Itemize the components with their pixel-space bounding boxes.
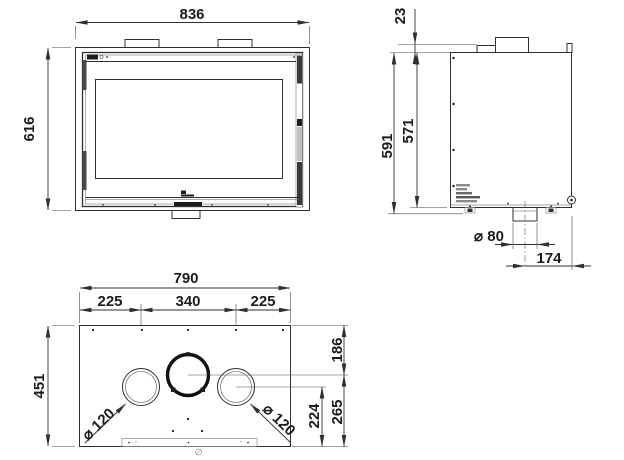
dim-label-790: 790 xyxy=(173,270,198,287)
front-view: 836 616 xyxy=(21,6,310,219)
dim-label-616: 616 xyxy=(21,116,38,141)
dim-label-186: 186 xyxy=(329,337,346,362)
dimension-back-to-flue: 186 xyxy=(329,326,346,376)
technical-drawing: 836 616 xyxy=(0,0,624,460)
dimension-duct-to-front: 174 xyxy=(506,216,591,270)
dimension-flue-to-front: 265 xyxy=(329,375,346,447)
dim-label-224: 224 xyxy=(306,403,323,429)
dim-label-591: 591 xyxy=(379,133,396,158)
dim-label-225-left: 225 xyxy=(97,293,122,310)
side-view: 23 591 571 xyxy=(379,8,591,270)
dim-label-836: 836 xyxy=(179,6,204,23)
dim-label-265: 265 xyxy=(329,399,346,424)
top-view: 790 225 340 225 451 xyxy=(31,270,348,455)
dim-label-571: 571 xyxy=(400,118,417,143)
dim-label-d80: ⌀ 80 xyxy=(474,228,504,245)
dim-label-340: 340 xyxy=(175,293,200,310)
hinge-strip-right xyxy=(296,54,303,207)
drawing-svg: 836 616 xyxy=(0,0,624,460)
dim-label-23: 23 xyxy=(392,8,409,25)
latch-mark xyxy=(196,449,202,455)
dimension-body-depth: 451 xyxy=(31,326,75,447)
dim-label-174: 174 xyxy=(536,250,562,267)
dimension-outlet-to-front: 224 xyxy=(306,387,323,447)
door-handle xyxy=(174,202,202,206)
front-flange-edge xyxy=(567,44,572,53)
flue-collar xyxy=(168,352,209,395)
dimension-duct-diameter: ⌀ 80 xyxy=(474,223,555,249)
base-dot xyxy=(557,203,559,205)
dimension-front-width: 836 xyxy=(76,6,310,44)
front-bracket xyxy=(122,439,257,447)
mounting-tab-bottom xyxy=(172,211,200,219)
damper-knob xyxy=(568,196,576,204)
mounting-tab-top-right xyxy=(218,40,252,48)
dim-label-451: 451 xyxy=(31,373,48,398)
mounting-tab-top-left xyxy=(125,40,159,48)
dimension-front-height: 616 xyxy=(21,48,71,211)
dim-label-225-right: 225 xyxy=(250,293,275,310)
dimension-body-height: 571 xyxy=(400,53,447,208)
base-dot xyxy=(507,203,509,205)
front-flange xyxy=(76,48,310,211)
flue-collar-side xyxy=(496,38,529,53)
top-frame-step xyxy=(477,46,496,53)
